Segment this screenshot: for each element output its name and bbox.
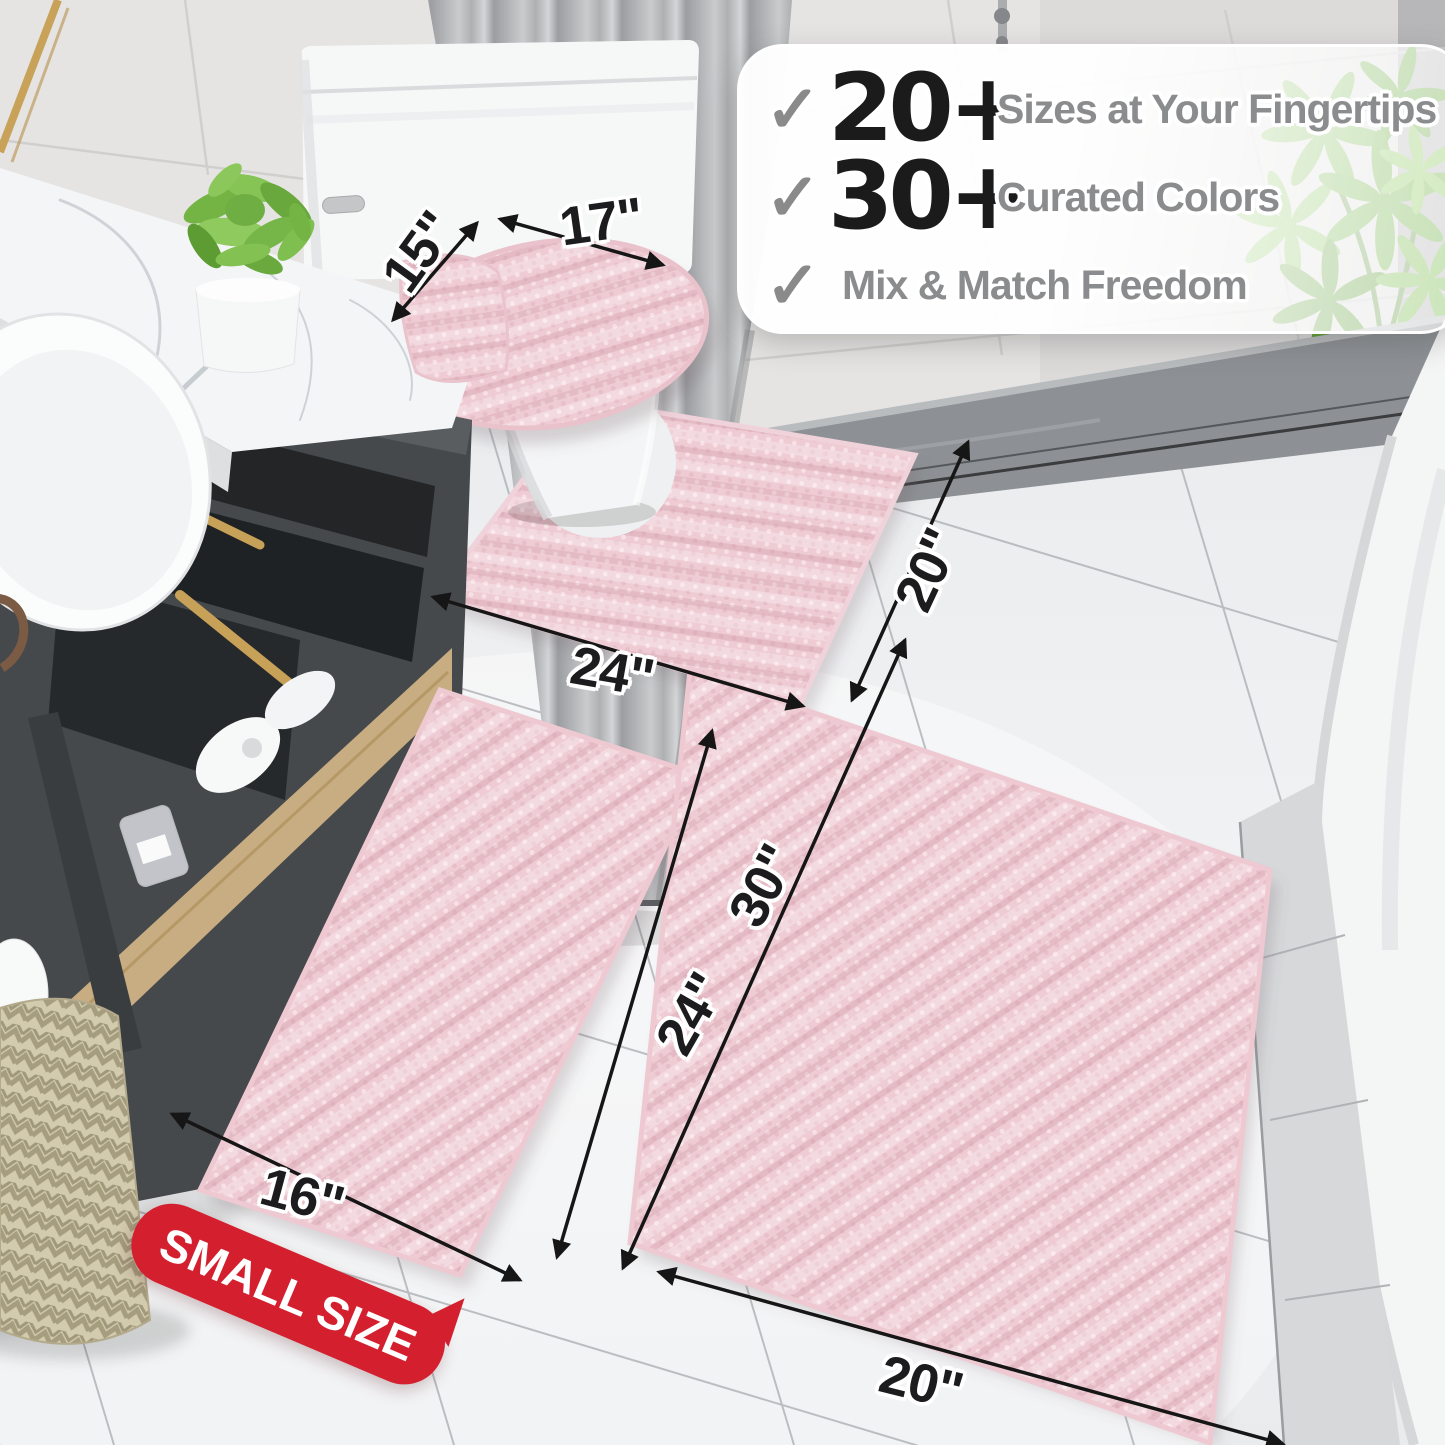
product-image: ✓ 20+ Sizes at Your Fingertips ✓ 30+ Cur… [0,0,1445,1445]
callout-label: Sizes at Your Fingertips [997,86,1436,133]
checkmark-icon: ✓ [758,76,828,142]
checkmark-icon: ✓ [758,164,828,230]
callout-label: Curated Colors [997,174,1279,221]
callout-row: ✓ 20+ Sizes at Your Fingertips [740,65,1445,153]
callout-box: ✓ 20+ Sizes at Your Fingertips ✓ 30+ Cur… [737,44,1445,334]
callout-row: ✓ 30+ Curated Colors [740,153,1445,241]
callout-count: 30+ [828,150,983,244]
checkmark-icon: ✓ [758,252,828,318]
callout-label: Mix & Match Freedom [842,262,1247,309]
callout-row: ✓ Mix & Match Freedom [740,241,1445,329]
flush-handle [322,195,365,214]
dimension-label-contour-width: 24" [567,638,658,706]
dimension-label-lid-width: 17" [556,190,645,255]
